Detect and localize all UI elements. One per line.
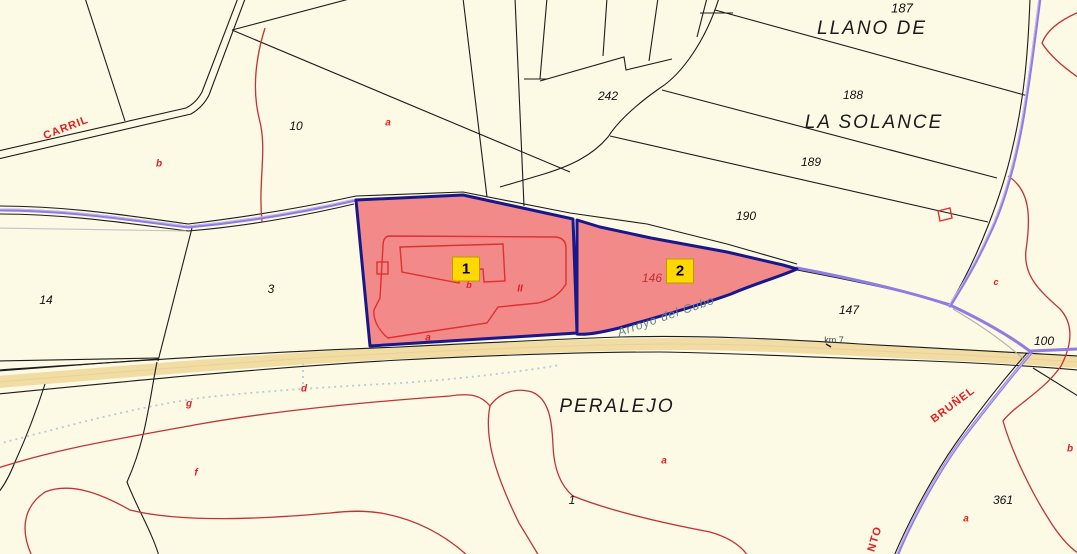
highlight-marker-1[interactable]: 1: [452, 257, 480, 282]
highlight-marker-2[interactable]: 2: [666, 259, 694, 284]
map-viewport[interactable]: LLANO DE 187 LLANO DE 242 188 LA SOLANCE…: [0, 0, 1077, 554]
cadastral-map-canvas: [0, 0, 1077, 554]
main-road: [0, 344, 1077, 382]
highlighted-parcels: [356, 195, 797, 346]
red-square-marker: [938, 208, 952, 221]
